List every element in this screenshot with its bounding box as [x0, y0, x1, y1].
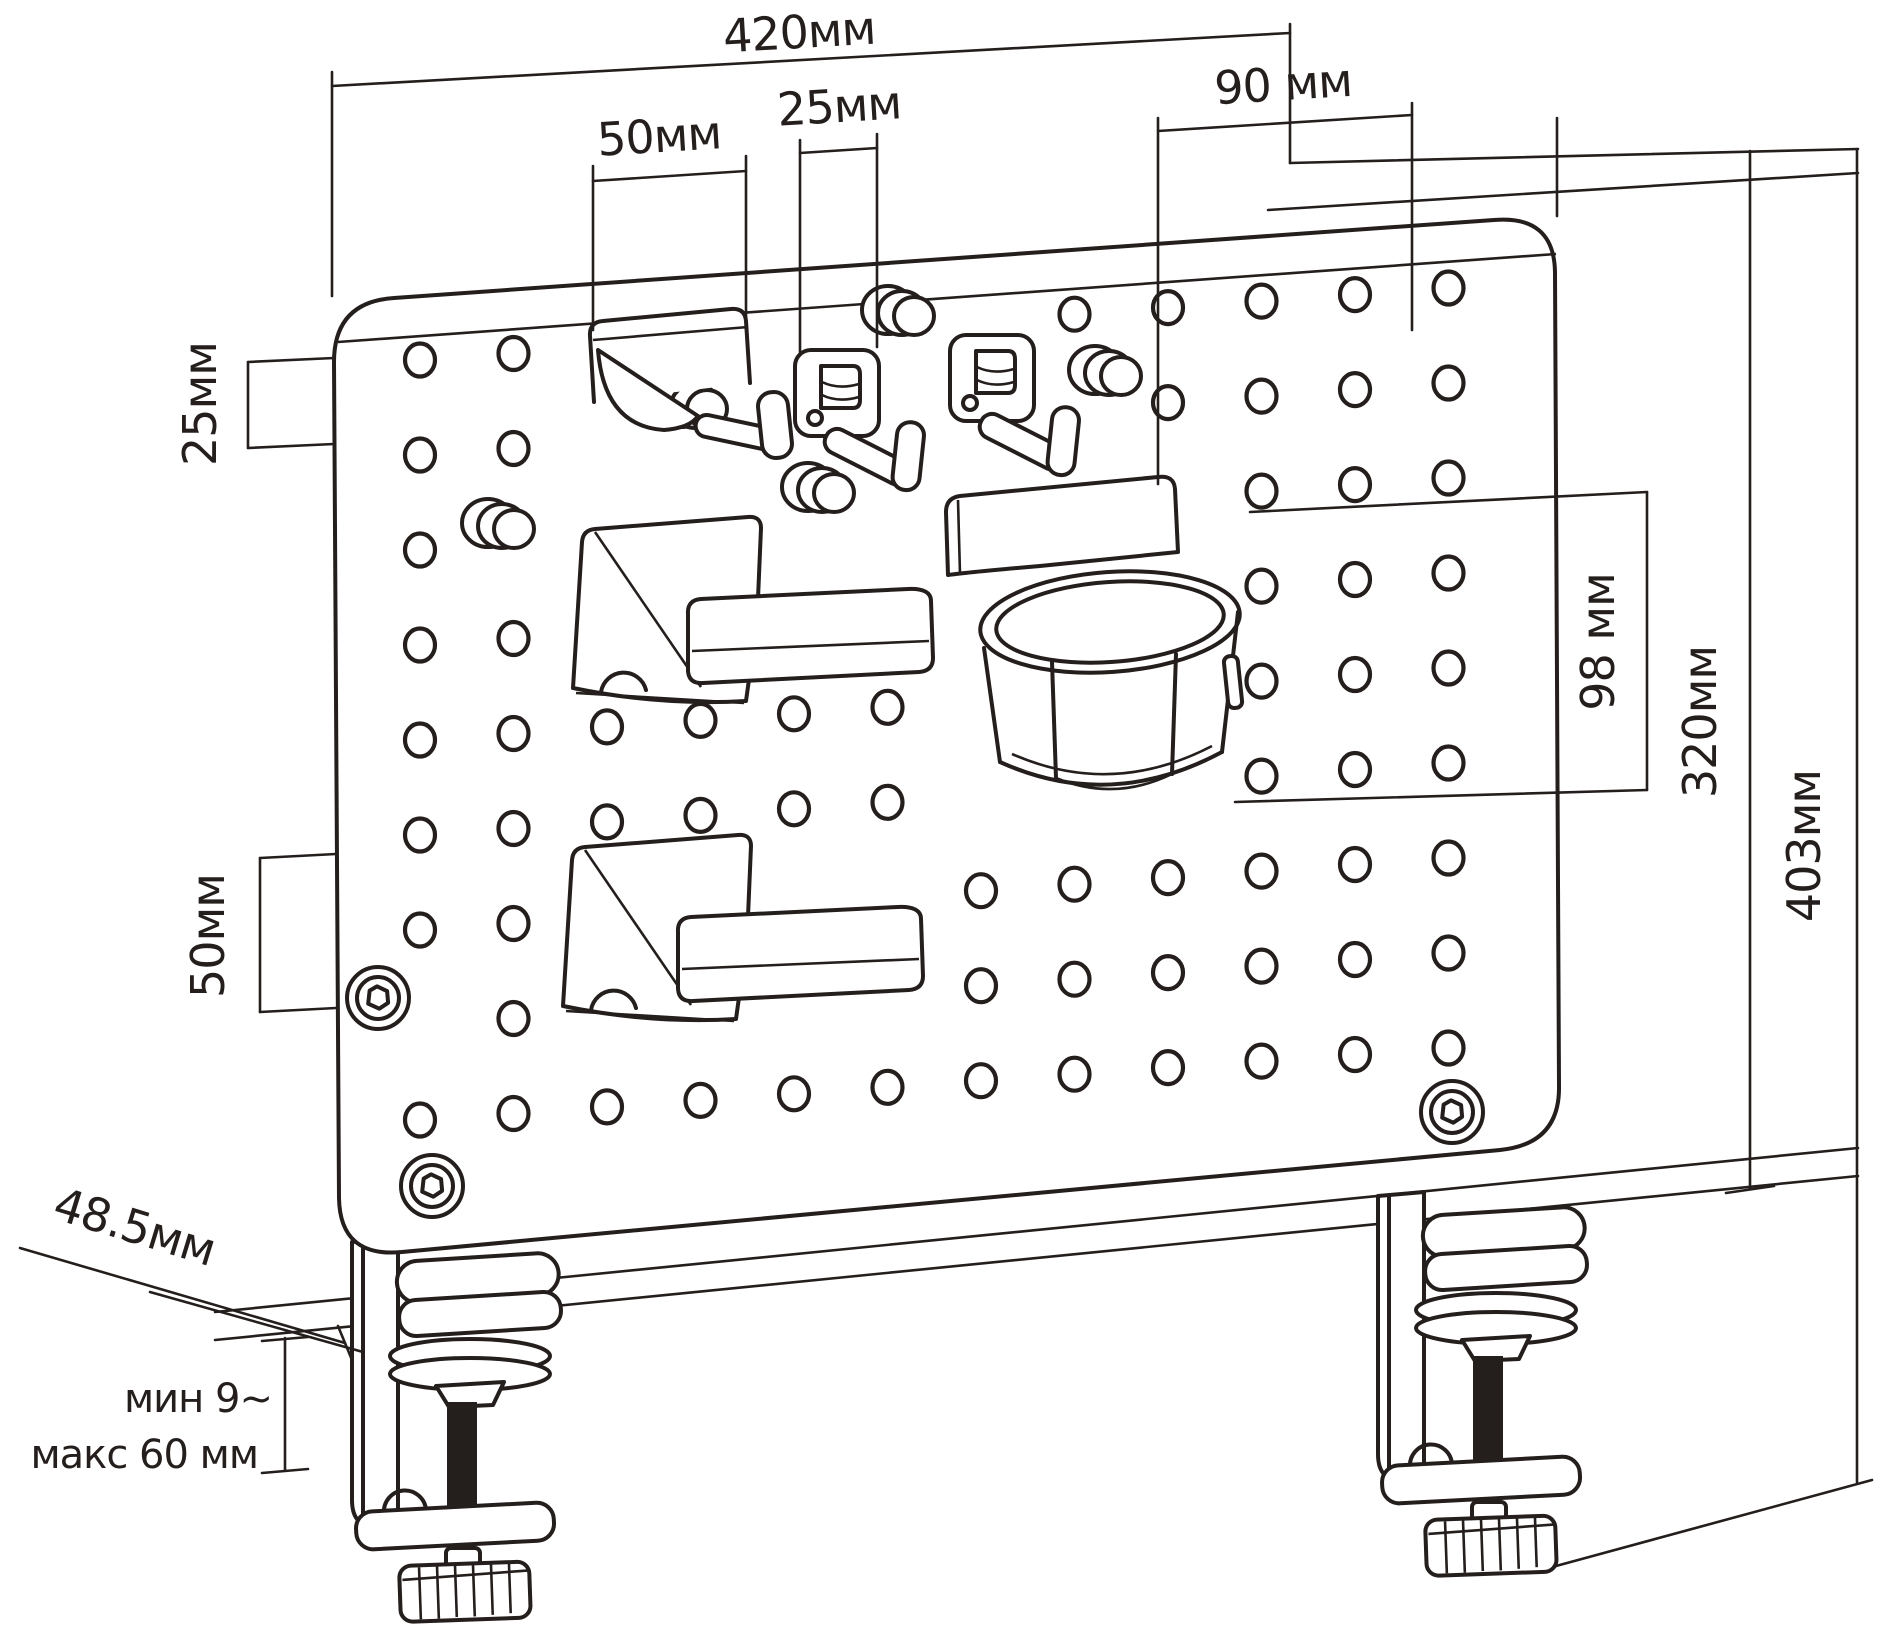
peg-hole [1247, 855, 1277, 888]
peg-hole [592, 1090, 622, 1123]
clamp-range-max-label: макс 60 мм [30, 1432, 258, 1478]
dimension-48-5: 48.5мм [20, 1177, 363, 1360]
peg-hole [592, 805, 622, 838]
peg-hole [405, 534, 435, 567]
dimension-label-320: 320мм [1673, 646, 1727, 798]
peg-hole [1340, 943, 1370, 976]
peg-hole [405, 724, 435, 757]
peg-hole [499, 432, 529, 465]
clamp-range-min-label: мин 9~ [124, 1376, 272, 1422]
dimension-50-left: 50мм [181, 854, 336, 1012]
peg-hole [966, 874, 996, 907]
dimension-clamp-range: мин 9~ макс 60 мм [30, 1337, 308, 1478]
dimension-label-403: 403мм [1777, 770, 1831, 922]
peg-hole [499, 1097, 529, 1130]
drawing-stage: 420мм 50мм 25мм 90 мм 25мм 50мм 98 мм [0, 0, 1886, 1632]
dimension-label-25-left: 25мм [173, 342, 227, 466]
peg-hole [499, 622, 529, 655]
peg-hole [499, 907, 529, 940]
peg-hole [1247, 665, 1277, 698]
peg-hole [1434, 937, 1464, 970]
peg-hole [1434, 652, 1464, 685]
peg-hole [1247, 1045, 1277, 1078]
peg-hole [499, 1002, 529, 1035]
dimension-label-48-5: 48.5мм [47, 1177, 221, 1277]
peg-hole [1340, 753, 1370, 786]
peg-hole [1434, 462, 1464, 495]
peg-hole [1247, 950, 1277, 983]
screw [401, 1155, 463, 1217]
peg-hole [405, 914, 435, 947]
peg-hole [966, 969, 996, 1002]
right-desk-clamp [1378, 1192, 1588, 1576]
dimension-label-25-top: 25мм [776, 75, 903, 136]
peg-hole [779, 792, 809, 825]
peg-hole [873, 1071, 903, 1104]
peg-hole [1247, 570, 1277, 603]
peg-hole [1153, 861, 1183, 894]
peg-hole [1340, 278, 1370, 311]
dimension-label-90: 90 мм [1213, 53, 1354, 115]
peg-hole [405, 344, 435, 377]
peg-hole [1434, 557, 1464, 590]
peg-hole [1434, 272, 1464, 305]
peg-hole [1060, 1058, 1090, 1091]
peg-hole [1247, 475, 1277, 508]
left-desk-clamp [352, 1238, 562, 1622]
peg-hole [592, 710, 622, 743]
peg-hole [405, 1104, 435, 1137]
peg-hole [1340, 658, 1370, 691]
peg-hole [1153, 956, 1183, 989]
peg-hole [1060, 298, 1090, 331]
peg-hole [1434, 842, 1464, 875]
pegboard-panel [334, 118, 1559, 1253]
peg-hole [1340, 563, 1370, 596]
dimension-403: 403мм [1556, 149, 1872, 1566]
peg-hole [779, 697, 809, 730]
pegboard-technical-drawing: 420мм 50мм 25мм 90 мм 25мм 50мм 98 мм [0, 0, 1886, 1632]
peg-hole [1434, 747, 1464, 780]
peg-hole [499, 337, 529, 370]
dimension-25-left: 25мм [173, 342, 334, 466]
peg-hole [499, 717, 529, 750]
peg-hole [499, 812, 529, 845]
screw [347, 967, 409, 1029]
screw [1421, 1081, 1483, 1143]
peg-hole [1434, 367, 1464, 400]
peg-hole [1247, 380, 1277, 413]
dimension-label-50-left: 50мм [181, 874, 235, 998]
peg-hole [686, 704, 716, 737]
peg-hole [1247, 760, 1277, 793]
dimension-label-98: 98 мм [1571, 573, 1625, 711]
peg-hole [1340, 848, 1370, 881]
peg-hole [1340, 1038, 1370, 1071]
peg-hole [873, 691, 903, 724]
peg-hole [686, 799, 716, 832]
peg-hole [1340, 373, 1370, 406]
peg-hole [1340, 468, 1370, 501]
peg-hole [1247, 285, 1277, 318]
peg-hole [1060, 868, 1090, 901]
dimension-label-420: 420мм [722, 1, 877, 64]
dimension-320: 320мм [1673, 151, 1774, 1193]
peg-hole [1153, 1051, 1183, 1084]
peg-hole [405, 439, 435, 472]
peg-hole [405, 819, 435, 852]
peg-hole [405, 629, 435, 662]
dimension-label-50-top: 50мм [596, 105, 723, 166]
peg-hole [1434, 1032, 1464, 1065]
peg-hole [966, 1064, 996, 1097]
peg-hole [873, 786, 903, 819]
peg-hole [779, 1077, 809, 1110]
peg-hole [1060, 963, 1090, 996]
peg-hole [686, 1084, 716, 1117]
